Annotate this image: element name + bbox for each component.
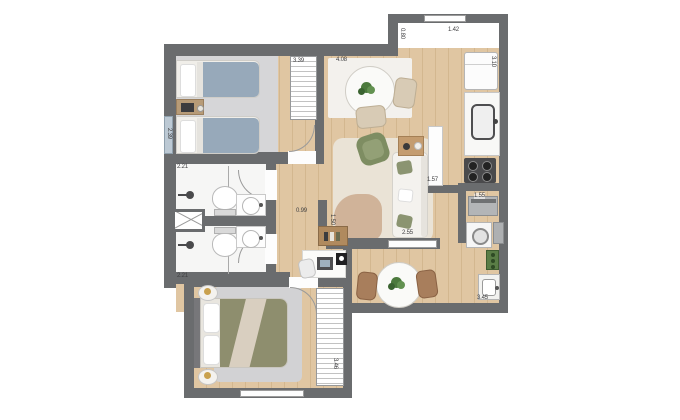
toilet-1 xyxy=(212,186,238,210)
dim-hallway-wall: 1.50 xyxy=(329,214,335,225)
sideboard xyxy=(318,226,348,246)
laptop-screen xyxy=(320,260,330,267)
wall-bathroom-divider xyxy=(204,216,266,226)
wall-bedroom2-left xyxy=(184,278,194,398)
twin-bed-1-pillow xyxy=(180,64,196,97)
sofa-pillow-olive-2 xyxy=(396,214,413,230)
wall-left xyxy=(164,44,176,288)
dryer-controls xyxy=(471,199,496,203)
dryer xyxy=(468,196,498,216)
dim-bedroom1-height: 2.39 xyxy=(166,128,172,139)
dining-plant-leaf-2 xyxy=(367,86,375,94)
desk-speaker-ring xyxy=(339,256,344,261)
terrace-plant-leaf-2 xyxy=(397,281,405,289)
laundry-cabinet xyxy=(493,222,504,244)
stove xyxy=(464,158,496,183)
wall-bedroom2-top-left xyxy=(184,278,290,287)
ventilation-shaft xyxy=(172,209,205,232)
laptop-icon xyxy=(317,257,333,270)
side-table xyxy=(398,136,424,156)
door-gap-bathroom1 xyxy=(265,170,277,200)
twin-bed-2 xyxy=(176,116,260,154)
washer xyxy=(466,222,492,248)
laundry-faucet-icon xyxy=(495,286,499,290)
dim-living-width: 2.55 xyxy=(402,230,413,236)
sideboard-books-2 xyxy=(330,232,334,241)
armchair-seat xyxy=(361,137,386,161)
sofa-back xyxy=(421,155,427,237)
sink-basin-2 xyxy=(242,230,260,248)
kitchen-sink xyxy=(471,104,495,140)
dim-kitchen-top: 1.42 xyxy=(448,27,459,33)
door-gap-bedroom1 xyxy=(288,151,316,164)
door-gap-bathroom2 xyxy=(265,234,277,264)
twin-bed-2-pillow xyxy=(180,120,196,153)
burner-3-icon xyxy=(468,172,478,182)
twin-bed-1 xyxy=(176,60,260,98)
wall-right xyxy=(499,14,508,312)
dim-hallway-width: 0.99 xyxy=(296,208,307,214)
burner-1-icon xyxy=(468,161,478,171)
window-top-kitchen xyxy=(424,15,466,22)
sideboard-books-3 xyxy=(336,232,340,241)
sofa xyxy=(392,152,428,238)
bed-pillow-1 xyxy=(203,303,220,333)
washer-door-icon xyxy=(472,228,489,245)
burner-2-icon xyxy=(482,161,492,171)
kitchen-faucet-icon xyxy=(493,119,498,124)
sink-counter-1 xyxy=(236,194,266,216)
terrace-sliding-door xyxy=(388,240,437,248)
dim-dining-width: 4.08 xyxy=(336,57,347,63)
dim-laundry-width: 1.55 xyxy=(474,193,485,199)
wardrobe-bedroom1 xyxy=(290,56,317,120)
sideboard-books-1 xyxy=(324,232,328,241)
desk-speaker-icon xyxy=(336,253,347,265)
dim-laundry-bottom: 3.45 xyxy=(477,295,488,301)
wall-bottom-right xyxy=(343,303,508,313)
shower-head-2-icon xyxy=(186,241,194,249)
rack-dot-3 xyxy=(491,265,495,269)
toilet-1-tank xyxy=(214,209,236,216)
nightstand-bedroom1 xyxy=(176,99,204,115)
twin-bed-1-blanket xyxy=(203,62,259,97)
wall-kitchen-stub xyxy=(424,185,458,193)
dim-entry-step: 0.80 xyxy=(399,28,405,39)
rack-dot-2 xyxy=(491,259,495,263)
lamp-top-icon xyxy=(204,288,211,295)
side-table-decor-light xyxy=(414,142,422,150)
nightstand-tv xyxy=(181,103,194,112)
sink-counter-2 xyxy=(236,226,266,248)
dim-bathroom-bottom: 2.21 xyxy=(177,273,188,279)
toilet-2 xyxy=(212,233,238,257)
sink-faucet-2-icon xyxy=(259,236,263,240)
double-bed xyxy=(200,298,288,368)
rack-dot-1 xyxy=(491,253,495,257)
dim-bedroom1-width: 3.39 xyxy=(293,58,304,64)
dim-kitchen-height: 3.10 xyxy=(490,56,496,67)
wall-laundry-left xyxy=(458,183,466,243)
burner-4-icon xyxy=(482,172,492,182)
laundry-tub-basin xyxy=(482,279,496,296)
dim-bedroom2-width: 3.46 xyxy=(332,358,338,369)
dining-plant-leaf-3 xyxy=(358,88,365,95)
kitchen-counter xyxy=(464,92,500,156)
side-table-decor-dark xyxy=(403,143,410,150)
sofa-pillow-white xyxy=(397,188,413,202)
lamp-bottom-icon xyxy=(204,372,211,379)
dining-chair-right xyxy=(392,77,418,110)
dim-bathroom-top: 2.21 xyxy=(177,164,188,170)
bed-pillow-2 xyxy=(203,335,220,365)
dim-corridor-width: 1.57 xyxy=(427,177,438,183)
dining-chair-bottom xyxy=(355,104,387,129)
shower-head-1-icon xyxy=(186,191,194,199)
twin-bed-2-blanket xyxy=(203,118,259,153)
wardrobe-bedroom2 xyxy=(316,288,344,386)
wall-top-main xyxy=(164,44,398,56)
floor-plan: 2.39 2.21 2.21 3.39 4.08 0.80 1.42 3.10 … xyxy=(0,0,680,420)
terrace-chair-left xyxy=(356,271,379,301)
terrace-chair-right xyxy=(415,269,439,300)
sink-basin-1 xyxy=(242,197,260,215)
terrace-plant-leaf-3 xyxy=(388,283,395,290)
sofa-pillow-olive-1 xyxy=(396,160,413,175)
drying-rack xyxy=(486,250,499,270)
sink-faucet-1-icon xyxy=(259,203,263,207)
nightstand-lamp xyxy=(197,105,204,112)
window-bedroom2-bottom xyxy=(240,390,304,397)
